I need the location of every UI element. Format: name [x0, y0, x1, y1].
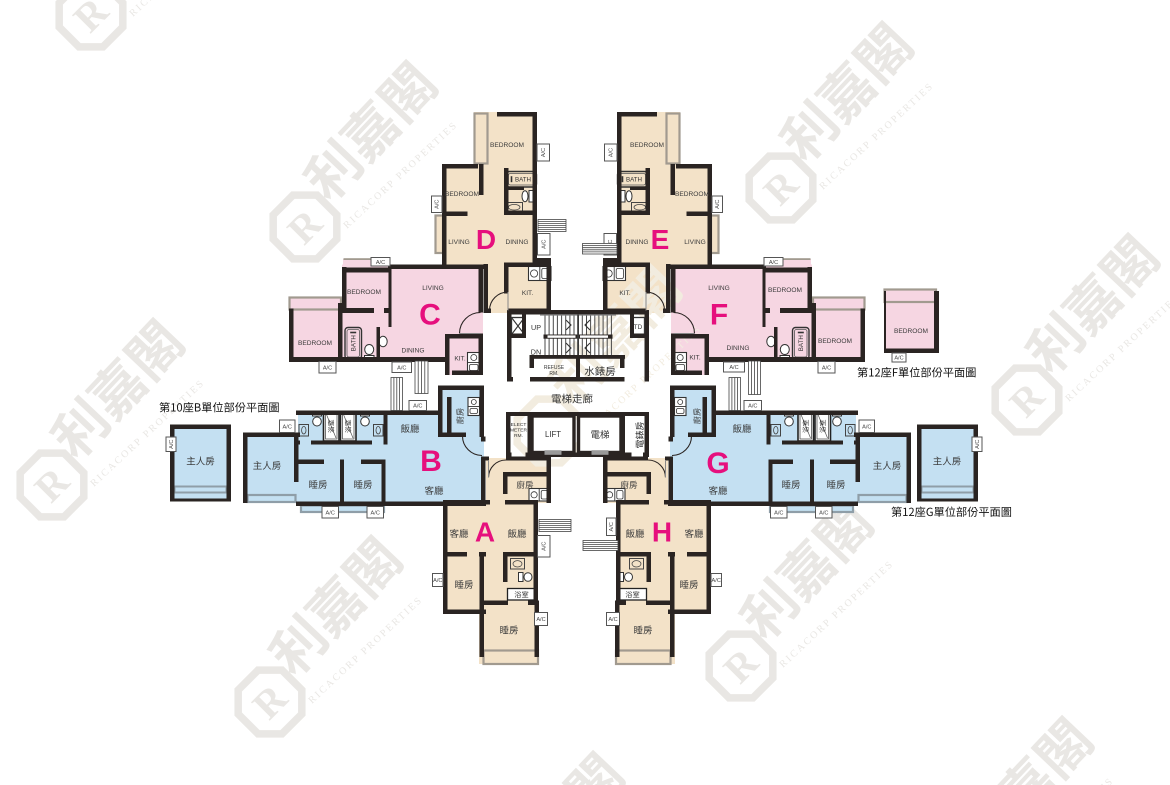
svg-text:A/C: A/C — [769, 260, 778, 266]
svg-text:A/C: A/C — [712, 578, 721, 584]
svg-text:DINING: DINING — [726, 345, 749, 352]
svg-text:A/C: A/C — [413, 404, 422, 410]
svg-text:BATH: BATH — [626, 177, 642, 184]
svg-text:A/C: A/C — [376, 260, 385, 266]
svg-text:A/C: A/C — [326, 510, 335, 516]
svg-text:BEDROOM: BEDROOM — [675, 191, 709, 198]
svg-text:F: F — [710, 299, 728, 332]
svg-text:ELECT: ELECT — [511, 422, 527, 428]
svg-text:A/C: A/C — [609, 522, 615, 531]
svg-text:A/C: A/C — [748, 404, 757, 410]
svg-text:A: A — [475, 517, 495, 548]
svg-text:A/C: A/C — [715, 200, 721, 209]
svg-text:BEDROOM: BEDROOM — [768, 287, 802, 294]
svg-text:A/C: A/C — [323, 365, 332, 371]
svg-text:BEDROOM: BEDROOM — [445, 191, 479, 198]
svg-text:A/C: A/C — [609, 148, 615, 157]
svg-text:A/C: A/C — [729, 365, 738, 371]
svg-text:A/C: A/C — [541, 148, 547, 157]
svg-text:RM.: RM. — [549, 371, 558, 377]
svg-text:A/C: A/C — [536, 617, 545, 623]
svg-text:A/C: A/C — [371, 510, 380, 516]
svg-text:TD: TD — [634, 324, 643, 331]
svg-text:KIT.: KIT. — [454, 356, 466, 363]
svg-text:A/C: A/C — [433, 578, 442, 584]
svg-text:A/C: A/C — [542, 240, 548, 249]
svg-text:A/C: A/C — [283, 424, 292, 430]
svg-text:A/C: A/C — [774, 510, 783, 516]
svg-text:LIVING: LIVING — [708, 285, 730, 292]
svg-text:A/C: A/C — [862, 424, 871, 430]
svg-text:UP: UP — [531, 323, 541, 332]
svg-text:A/C: A/C — [822, 365, 831, 371]
svg-text:DINING: DINING — [505, 239, 528, 246]
svg-text:D: D — [476, 224, 496, 255]
svg-text:A/C: A/C — [169, 440, 175, 449]
svg-text:KIT.: KIT. — [689, 355, 701, 362]
svg-text:A/C: A/C — [894, 356, 903, 362]
svg-text:BEDROOM: BEDROOM — [490, 142, 524, 149]
svg-text:BEDROOM: BEDROOM — [347, 289, 381, 296]
svg-text:BEDROOM: BEDROOM — [818, 338, 852, 345]
svg-text:E: E — [651, 224, 670, 255]
svg-text:A/C: A/C — [435, 200, 441, 209]
svg-text:LIVING: LIVING — [422, 285, 444, 292]
svg-text:DN: DN — [531, 348, 541, 357]
svg-text:METER: METER — [510, 428, 528, 434]
svg-text:A/C: A/C — [397, 365, 406, 371]
svg-text:LIVING: LIVING — [684, 239, 706, 246]
svg-text:G: G — [706, 447, 729, 480]
svg-text:LIFT: LIFT — [545, 430, 561, 439]
svg-text:A/C: A/C — [608, 617, 617, 623]
svg-text:KIT.: KIT. — [619, 290, 631, 297]
svg-text:A/C: A/C — [819, 510, 828, 516]
svg-text:DINING: DINING — [625, 239, 648, 246]
svg-text:DINING: DINING — [401, 348, 424, 355]
svg-text:A/C: A/C — [975, 440, 981, 449]
svg-text:BEDROOM: BEDROOM — [894, 328, 928, 335]
svg-text:RM.: RM. — [514, 433, 523, 439]
svg-text:BATH: BATH — [350, 335, 357, 351]
svg-text:BEDROOM: BEDROOM — [298, 340, 332, 347]
svg-text:H: H — [652, 517, 672, 548]
svg-text:LIVING: LIVING — [448, 239, 470, 246]
svg-text:KIT.: KIT. — [522, 290, 534, 297]
svg-text:B: B — [420, 445, 442, 478]
svg-text:BEDROOM: BEDROOM — [630, 142, 664, 149]
svg-text:C: C — [419, 299, 441, 332]
svg-text:BATH: BATH — [798, 335, 805, 351]
svg-text:BATH: BATH — [515, 177, 531, 184]
svg-text:A/C: A/C — [542, 542, 548, 551]
